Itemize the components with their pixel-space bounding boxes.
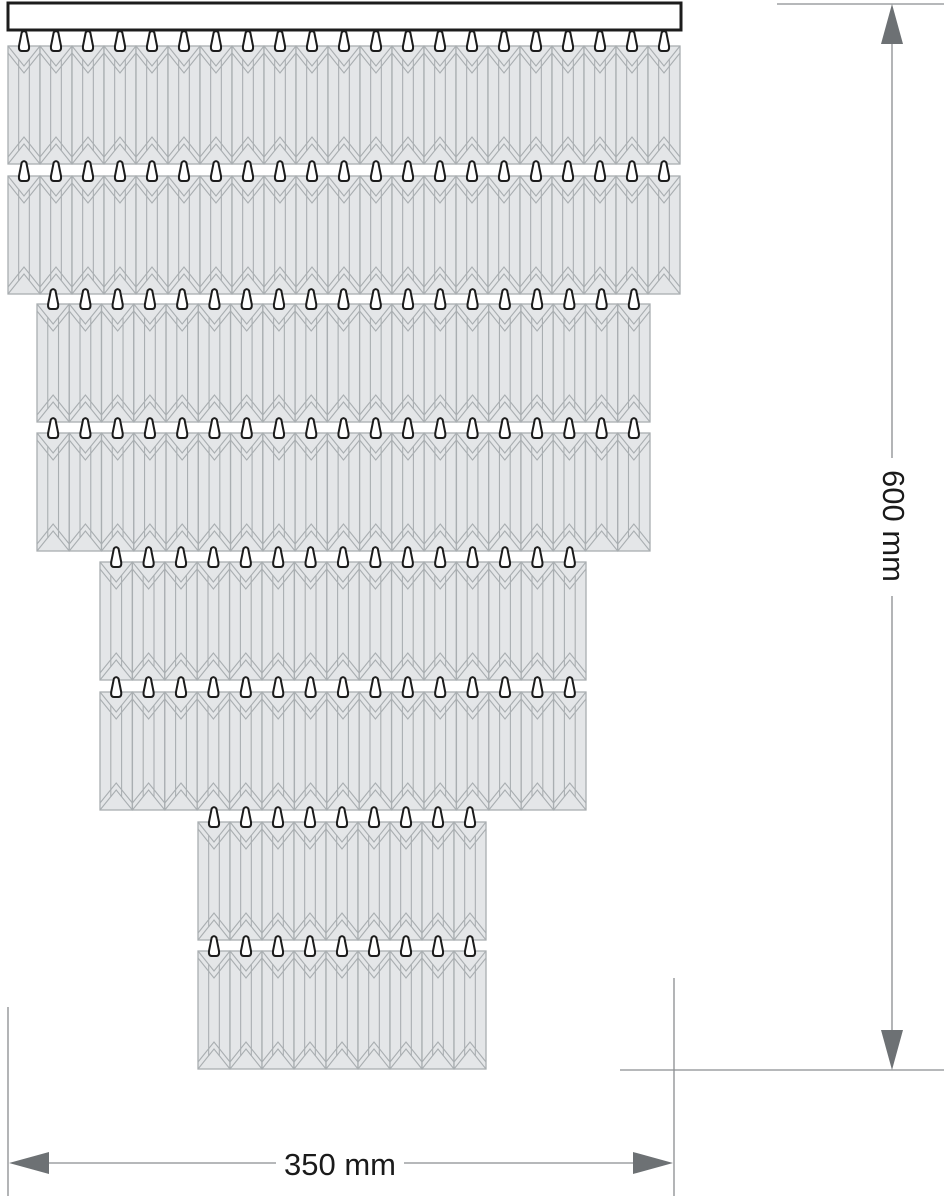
hanging-hook [337,936,347,956]
crystal-prism [197,562,229,680]
hanging-hook [564,418,574,438]
hanging-hook [433,807,443,827]
hanging-hook [306,289,316,309]
crystal-prism [294,951,326,1069]
crystal-prism [104,46,136,164]
crystal-prism [390,822,422,940]
crystal-prism [454,822,486,940]
hanging-hook [435,161,445,181]
crystal-prism [648,46,680,164]
crystal-prism [326,951,358,1069]
hanging-hook [595,31,605,51]
crystal-prism [520,46,552,164]
hanging-hook [369,807,379,827]
hanging-hook [338,547,348,567]
hanging-hook [177,418,187,438]
drawing-canvas: 600 mm 350 mm [0,0,944,1200]
crystal-prism [424,176,456,294]
crystal-prism [327,304,359,422]
hanging-hook [274,418,284,438]
hanging-hook [209,807,219,827]
crystal-prism [422,951,454,1069]
hanging-hook [209,936,219,956]
hanging-hook [597,289,607,309]
hanging-hook [209,418,219,438]
crystal-prism [136,46,168,164]
hanging-hook [370,547,380,567]
hanging-hook [145,418,155,438]
crystal-prism [392,562,424,680]
crystal-prism [296,46,328,164]
crystal-prism [552,176,584,294]
hanging-hook [500,677,510,697]
crystal-prism [262,692,294,810]
hanging-hook [275,31,285,51]
hanging-hook [275,161,285,181]
crystal-prism [100,692,132,810]
crystal-prism [132,692,164,810]
hanging-hook [500,289,510,309]
crystal-prism [489,562,521,680]
crystal-prism [132,562,164,680]
hanging-hook [307,161,317,181]
crystal-prism [40,176,72,294]
crystal-prism [231,433,263,551]
hanging-hook [305,936,315,956]
tier-row-2 [8,161,680,294]
hanging-hook [371,418,381,438]
crystal-prism [390,951,422,1069]
crystal-prism [166,433,198,551]
hanging-hook [208,547,218,567]
crystal-prism [198,433,230,551]
hanging-hook [435,31,445,51]
hanging-hook [435,547,445,567]
hanging-hook [273,936,283,956]
hanging-hook [435,289,445,309]
hanging-hook [401,936,411,956]
hanging-hook [113,418,123,438]
crystal-prism [584,46,616,164]
hanging-hook [401,807,411,827]
crystal-prism [392,46,424,164]
hanging-hook [177,289,187,309]
crystal-prism [327,433,359,551]
hanging-hook [371,31,381,51]
hanging-hook [243,161,253,181]
hanging-hook [80,289,90,309]
crystal-prism [197,692,229,810]
crystal-prism [553,304,585,422]
hanging-hook [500,547,510,567]
hanging-hook [144,547,154,567]
hanging-hook [176,677,186,697]
crystal-prism [424,46,456,164]
hanging-hook [209,289,219,309]
crystal-prism [200,176,232,294]
crystal-prism [328,46,360,164]
crystal-prism [263,433,295,551]
crystal-prism [294,692,326,810]
crystal-prism [200,46,232,164]
hanging-hook [339,31,349,51]
crystal-prism [489,692,521,810]
hanging-hook [144,677,154,697]
hanging-hook [531,161,541,181]
hanging-hook [115,31,125,51]
hanging-hook [371,161,381,181]
hanging-hook [273,677,283,697]
crystal-prism [358,951,390,1069]
hanging-hook [499,31,509,51]
crystal-prism [618,304,650,422]
hanging-hook [338,418,348,438]
hanging-hook [241,547,251,567]
crystal-prism [424,304,456,422]
crystal-prism [232,176,264,294]
hanging-hook [306,677,316,697]
crystal-prism [454,951,486,1069]
hanging-hook [403,677,413,697]
crystal-prism [100,562,132,680]
chandelier-technical-drawing: 600 mm 350 mm [0,0,944,1200]
crystal-prism [456,433,488,551]
hanging-hook [627,161,637,181]
hanging-hook [564,289,574,309]
hanging-hook [115,161,125,181]
crystal-prism [585,433,617,551]
hanging-hook [370,677,380,697]
crystal-prism [231,304,263,422]
hanging-hook [369,936,379,956]
hanging-hook [80,418,90,438]
hanging-hook [111,547,121,567]
crystal-prism [8,46,40,164]
hanging-hook [241,807,251,827]
crystal-prism [230,562,262,680]
crystal-prism [456,692,488,810]
hanging-hook [597,418,607,438]
crystal-prism [585,304,617,422]
hanging-hook [339,161,349,181]
hanging-hook [499,161,509,181]
fixture-layer [8,3,681,1069]
crystal-prism [359,562,391,680]
crystal-prism [168,46,200,164]
crystal-prism [616,176,648,294]
crystal-prism [230,692,262,810]
crystal-prism [37,433,69,551]
crystal-prism [40,46,72,164]
crystal-prism [264,176,296,294]
crystal-prism [102,304,134,422]
hanging-hook [306,418,316,438]
hanging-hook [274,289,284,309]
crystal-prism [198,951,230,1069]
crystal-prism [69,433,101,551]
crystal-prism [294,822,326,940]
crystal-prism [648,176,680,294]
crystal-prism [134,304,166,422]
tier-row-6 [100,677,586,810]
crystal-prism [584,176,616,294]
hanging-hook [468,677,478,697]
crystal-prism [262,951,294,1069]
crystal-prism [392,304,424,422]
crystal-prism [488,46,520,164]
crystal-prism [456,304,488,422]
crystal-prism [616,46,648,164]
hanging-hook [145,289,155,309]
hanging-hook [179,31,189,51]
crystal-prism [424,692,456,810]
hanging-hook [211,31,221,51]
hanging-hook [338,289,348,309]
crystal-prism [294,562,326,680]
crystal-prism [262,822,294,940]
hanging-hook [467,289,477,309]
dimension-arrow-down [881,1030,903,1070]
hanging-hook [403,161,413,181]
crystal-prism [69,304,101,422]
crystal-prism [327,692,359,810]
hanging-hook [468,547,478,567]
hanging-hook [241,677,251,697]
crystal-prism [489,304,521,422]
dimension-arrow-left [9,1152,49,1174]
hanging-hook [531,31,541,51]
crystal-prism [104,176,136,294]
hanging-hook [563,31,573,51]
crystal-prism [37,304,69,422]
crystal-prism [360,433,392,551]
hanging-hook [532,418,542,438]
hanging-hook [19,161,29,181]
crystal-prism [168,176,200,294]
crystal-prism [424,433,456,551]
hanging-hook [467,418,477,438]
crystal-prism [521,433,553,551]
height-dimension-label: 600 mm [876,470,911,582]
crystal-prism [296,176,328,294]
crystal-prism [72,176,104,294]
tier-row-4 [37,418,650,551]
hanging-hook [629,289,639,309]
hanging-hook [371,289,381,309]
crystal-prism [360,176,392,294]
dimension-arrow-right [633,1152,673,1174]
crystal-prism [358,822,390,940]
hanging-hook [532,547,542,567]
hanging-hook [306,547,316,567]
hanging-hook [19,31,29,51]
crystal-prism [328,176,360,294]
crystal-prism [327,562,359,680]
crystal-prism [554,562,586,680]
hanging-hook [435,677,445,697]
hanging-hook [307,31,317,51]
crystal-prism [521,562,553,680]
hanging-hook [208,677,218,697]
crystal-prism [72,46,104,164]
crystal-prism [489,433,521,551]
hanging-hook [337,807,347,827]
tier-row-3 [37,289,650,422]
crystal-prism [392,176,424,294]
hanging-hook [83,31,93,51]
crystal-prism [134,433,166,551]
hanging-hook [51,161,61,181]
crystal-prism [554,692,586,810]
crystal-prism [232,46,264,164]
crystal-prism [8,176,40,294]
crystal-prism [230,951,262,1069]
hanging-hook [111,677,121,697]
hanging-hook [465,936,475,956]
hanging-hook [211,161,221,181]
hanging-hook [532,289,542,309]
hanging-hook [465,807,475,827]
crystal-prism [295,433,327,551]
crystal-prism [360,46,392,164]
crystal-prism [360,304,392,422]
tier-row-7 [198,807,486,940]
crystal-prism [165,562,197,680]
hanging-hook [176,547,186,567]
hanging-hook [273,547,283,567]
hanging-hook [433,936,443,956]
crystal-prism [295,304,327,422]
crystal-prism [166,304,198,422]
crystal-prism [456,176,488,294]
width-dimension-label: 350 mm [284,1147,396,1182]
hanging-hook [51,31,61,51]
crystal-prism [520,176,552,294]
hanging-hook [242,418,252,438]
crystal-prism [326,822,358,940]
hanging-hook [48,289,58,309]
hanging-hook [565,677,575,697]
crystal-prism [359,692,391,810]
hanging-hook [242,289,252,309]
hanging-hook [563,161,573,181]
hanging-hook [467,31,477,51]
hanging-hook [241,936,251,956]
crystal-prism [198,304,230,422]
hanging-hook [273,807,283,827]
hanging-hook [338,677,348,697]
hanging-hook [435,418,445,438]
hanging-hook [403,547,413,567]
crystal-prism [552,46,584,164]
crystal-prism [456,562,488,680]
crystal-prism [136,176,168,294]
hanging-hook [467,161,477,181]
crystal-prism [424,562,456,680]
hanging-hook [627,31,637,51]
crystal-prism [230,822,262,940]
crystal-prism [521,692,553,810]
crystal-prism [456,46,488,164]
crystal-prism [264,46,296,164]
hanging-hook [147,31,157,51]
hanging-hook [565,547,575,567]
crystal-prism [422,822,454,940]
hanging-hook [659,161,669,181]
hanging-hook [595,161,605,181]
hanging-hook [403,289,413,309]
hanging-hook [305,807,315,827]
hanging-hook [403,31,413,51]
hanging-hook [179,161,189,181]
crystal-prism [521,304,553,422]
hanging-hook [532,677,542,697]
hanging-hook [48,418,58,438]
hanging-hook [243,31,253,51]
mounting-bar [8,3,681,30]
crystal-prism [488,176,520,294]
crystal-prism [392,692,424,810]
crystal-prism [392,433,424,551]
dimension-arrow-up [881,4,903,44]
crystal-prism [198,822,230,940]
hanging-hook [659,31,669,51]
crystal-prism [553,433,585,551]
crystal-prism [618,433,650,551]
crystal-prism [165,692,197,810]
crystal-prism [263,304,295,422]
hanging-hook [629,418,639,438]
hanging-hook [83,161,93,181]
hanging-hook [403,418,413,438]
tier-row-1 [8,31,680,164]
tier-row-8 [198,936,486,1069]
crystal-prism [102,433,134,551]
hanging-hook [147,161,157,181]
hanging-hook [113,289,123,309]
hanging-hook [500,418,510,438]
crystal-prism [262,562,294,680]
tier-row-5 [100,547,586,680]
